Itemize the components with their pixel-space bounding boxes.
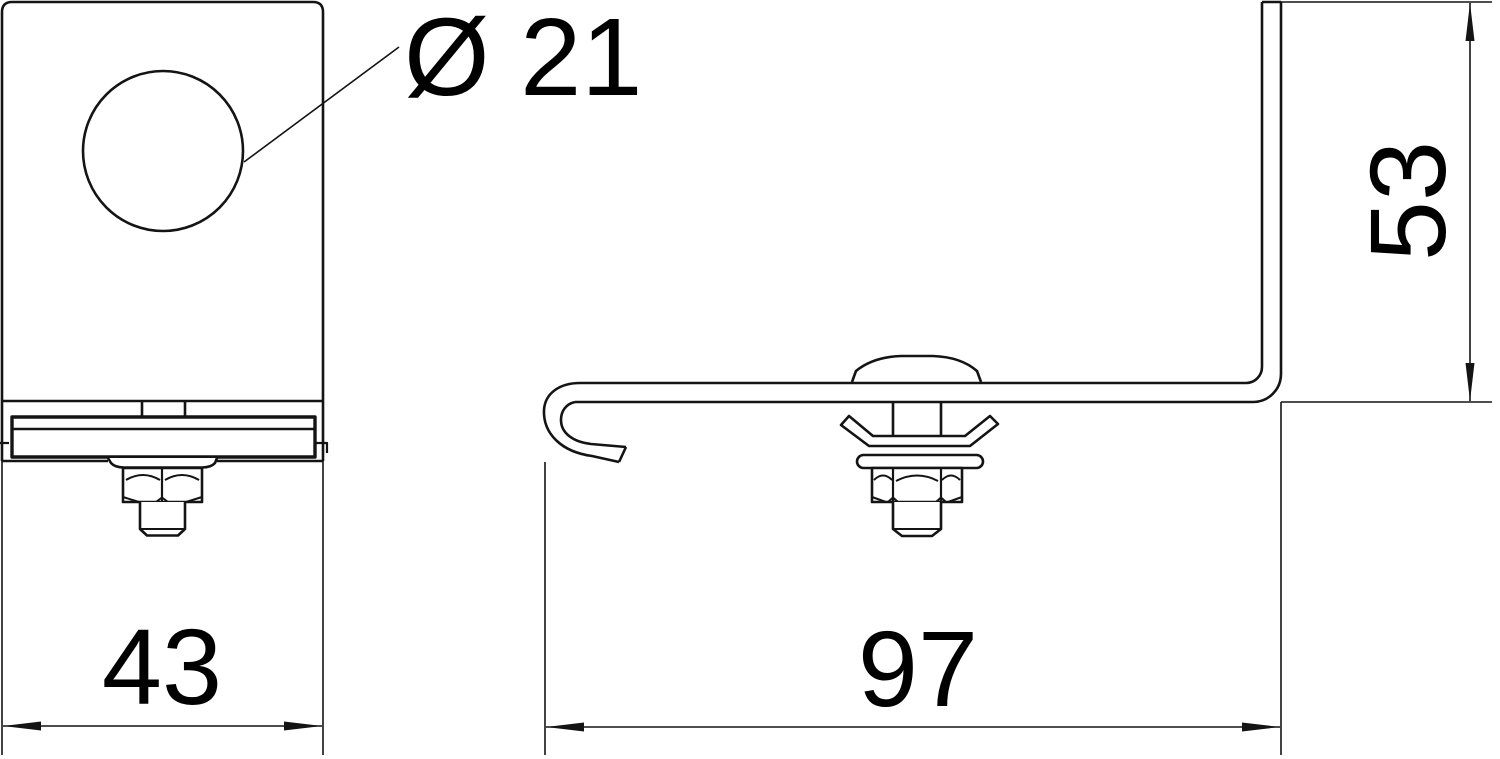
hex-nut-front bbox=[123, 468, 202, 502]
bolt-neck-side bbox=[893, 403, 941, 436]
height-dimension-label: 53 bbox=[1354, 101, 1462, 301]
length-dimension-label: 97 bbox=[818, 615, 1018, 723]
dome-head-bolt bbox=[852, 356, 981, 382]
hook-inner-curve bbox=[561, 402, 626, 447]
hole-leader-line bbox=[244, 47, 399, 162]
threaded-stud-front bbox=[140, 502, 185, 536]
arrowhead-right-icon bbox=[1242, 723, 1280, 732]
front-view bbox=[0, 2, 399, 536]
hex-nut-side bbox=[872, 468, 962, 502]
hook-tip-face bbox=[619, 447, 626, 462]
strip-outer-surface bbox=[575, 2, 1281, 402]
strip-inner-surface bbox=[580, 2, 1262, 383]
hole-circle bbox=[83, 71, 243, 231]
arrowhead-right-icon bbox=[284, 722, 322, 731]
flange-washer-side bbox=[857, 455, 983, 468]
hook-outer-curve bbox=[544, 383, 619, 462]
arrowhead-left-icon bbox=[3, 722, 41, 731]
side-view bbox=[544, 2, 1281, 536]
arrowhead-top-icon bbox=[1466, 3, 1475, 41]
clamp-bar bbox=[12, 417, 315, 457]
claw-washer bbox=[841, 416, 998, 446]
flange-washer-front bbox=[108, 458, 217, 468]
bolt-neck-front bbox=[142, 401, 185, 417]
arrowhead-bottom-icon bbox=[1466, 363, 1475, 401]
threaded-stud-side bbox=[893, 502, 941, 536]
arrowhead-left-icon bbox=[546, 723, 584, 732]
technical-drawing: Ø 21 43 97 53 bbox=[0, 0, 1500, 759]
hole-diameter-callout-label: Ø 21 bbox=[404, 3, 642, 113]
width-dimension-label: 43 bbox=[62, 613, 262, 721]
